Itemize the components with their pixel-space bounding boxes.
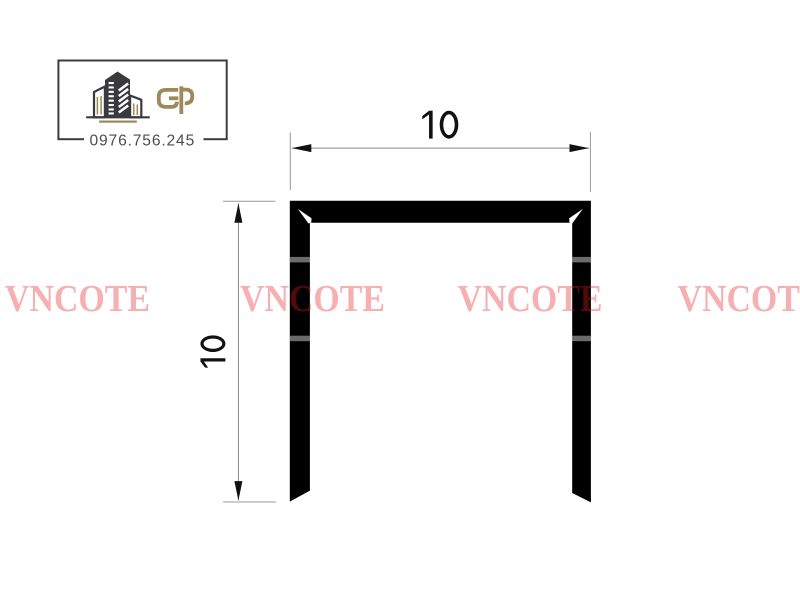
svg-text:VNCOTE: VNCOTE	[240, 278, 385, 320]
svg-text:VNCOTE: VNCOTE	[678, 278, 800, 320]
svg-text:VNCOTE: VNCOTE	[5, 278, 150, 320]
svg-text:VNCOTE: VNCOTE	[458, 278, 603, 320]
svg-text:0976.756.245: 0976.756.245	[90, 133, 196, 150]
